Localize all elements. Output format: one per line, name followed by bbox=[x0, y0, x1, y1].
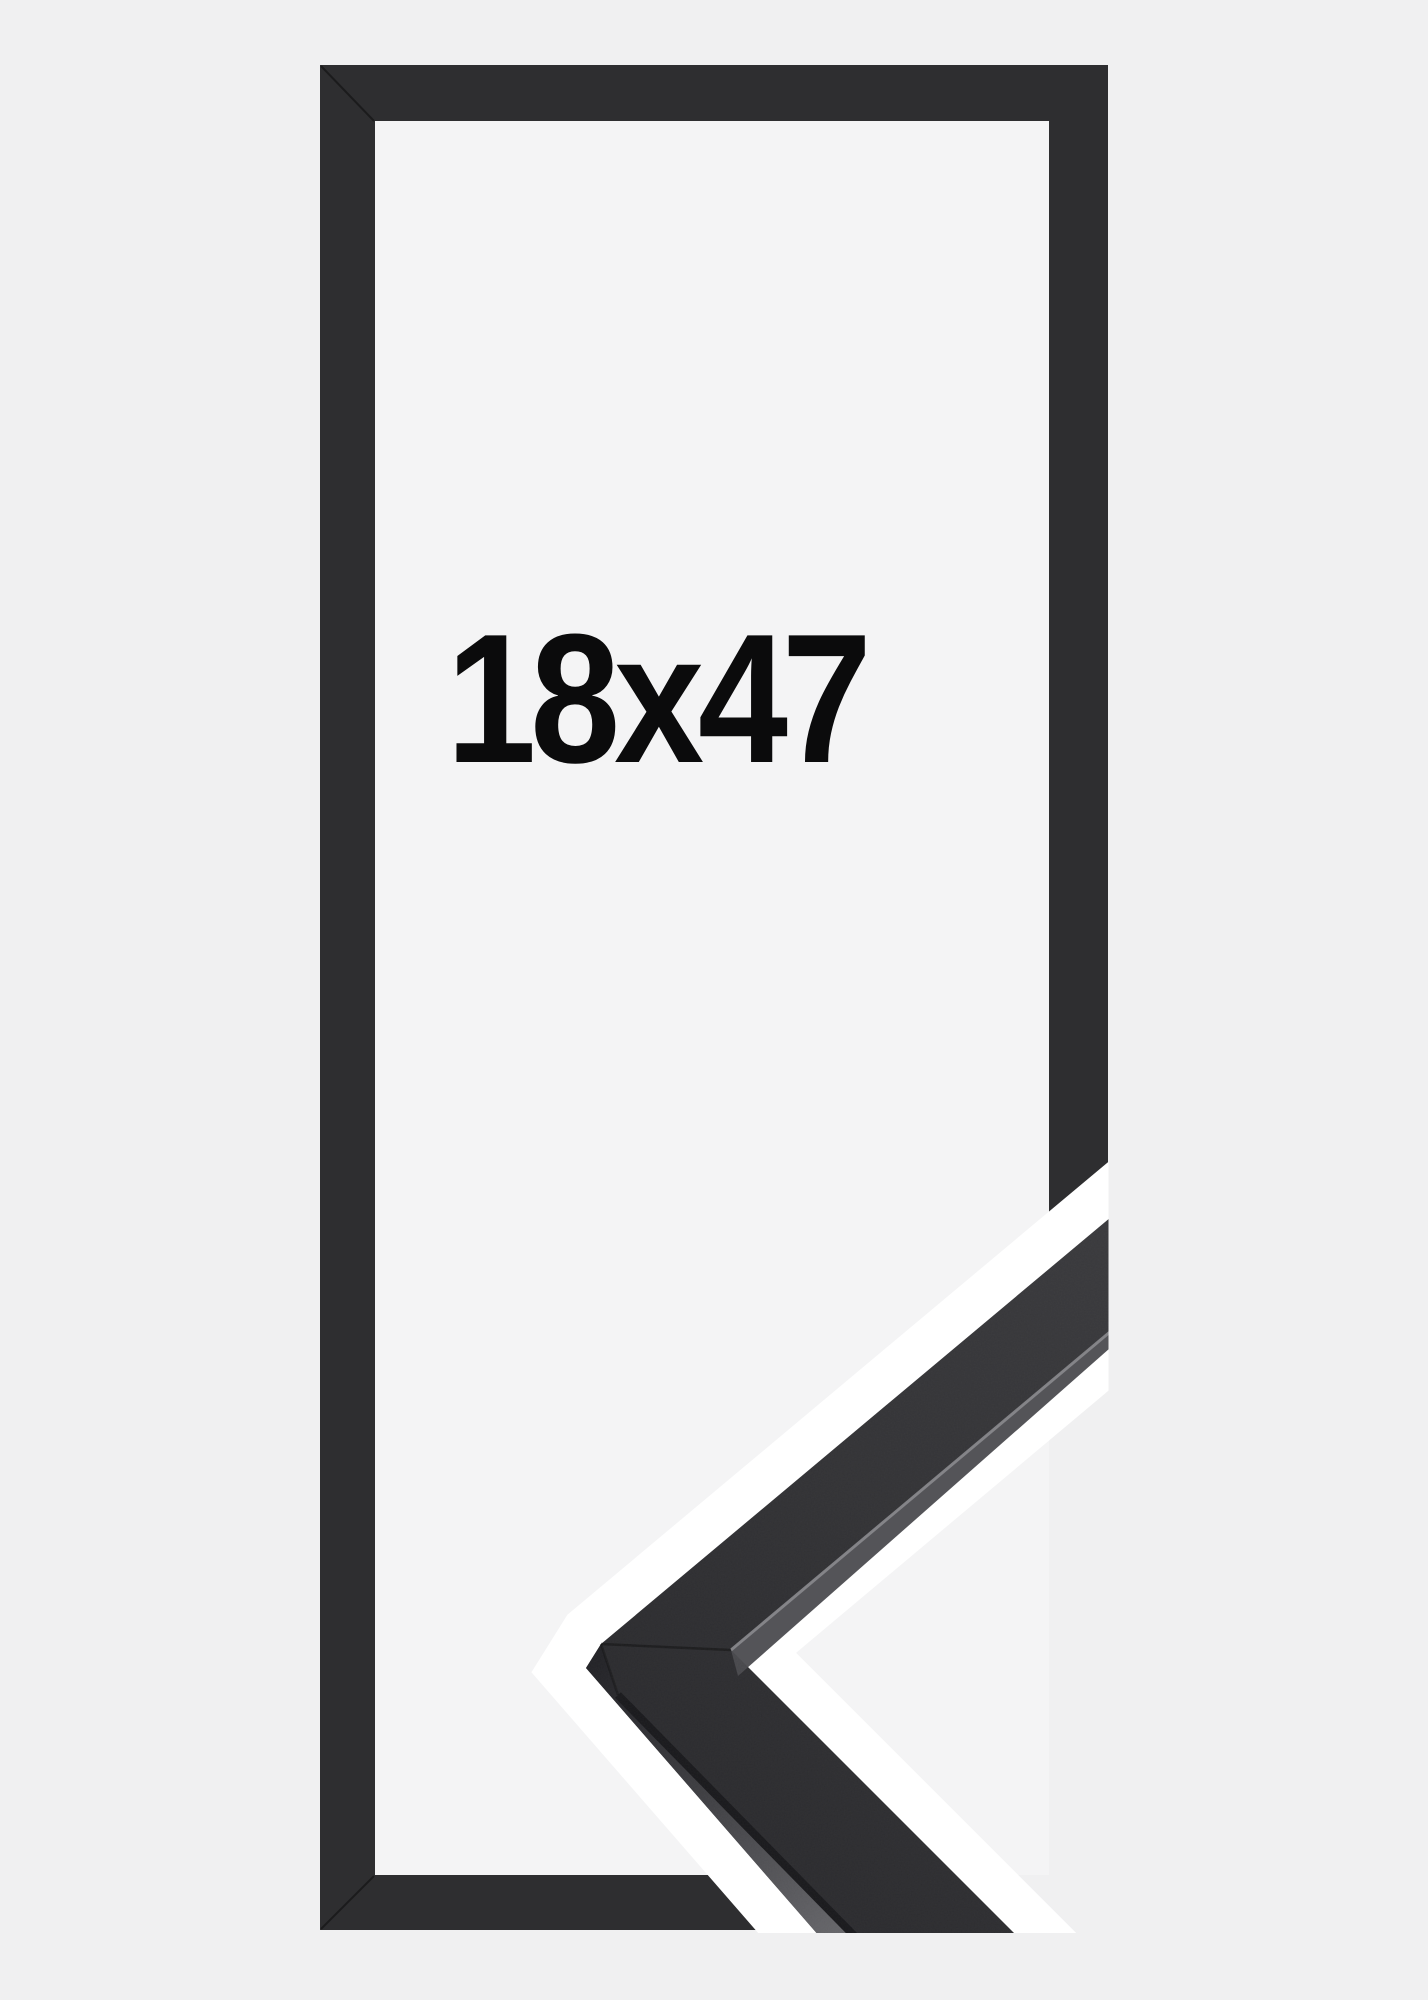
frame-product-image: 18x47 bbox=[0, 0, 1428, 2000]
size-label-group: 18x47 bbox=[446, 595, 865, 801]
size-label: 18x47 bbox=[446, 595, 865, 801]
frame-product-svg: 18x47 bbox=[0, 0, 1428, 2000]
